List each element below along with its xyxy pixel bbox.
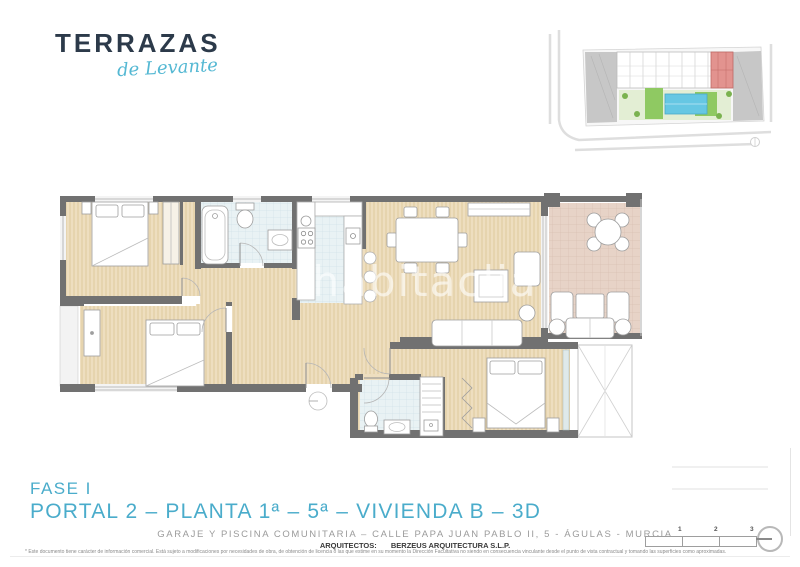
- landing-symbol: [309, 392, 327, 410]
- scale-label-1: 1: [678, 526, 682, 533]
- watermark-text: habitaclia: [312, 257, 537, 306]
- page-bottom-rule: [10, 556, 790, 557]
- page-edge-rule: [790, 448, 791, 536]
- scale-segment: [645, 536, 683, 547]
- scale-segment: [683, 536, 720, 547]
- divider-line: [672, 466, 768, 468]
- scale-label-3: 3: [750, 526, 754, 533]
- floor-plan: habitaclia: [55, 185, 655, 460]
- compass-needle: [756, 538, 772, 540]
- phase-title: FASE I: [30, 479, 92, 499]
- logo: TERRAZAS de Levante: [55, 28, 275, 77]
- bedroom1-furniture: [82, 202, 179, 266]
- scale-segment: [720, 536, 757, 547]
- disclaimer-text: * Este documento tiene carácter de infor…: [25, 549, 740, 555]
- address-line: GARAJE Y PISCINA COMUNITARIA – CALLE PAP…: [95, 529, 735, 540]
- site-parcel: [583, 47, 764, 147]
- compass-icon: [757, 526, 783, 552]
- brochure-page: TERRAZAS de Levante: [0, 0, 800, 567]
- site-plan-thumbnail: [545, 22, 777, 162]
- scale-bar: 1 2 3: [645, 536, 757, 546]
- unit-title: PORTAL 2 – PLANTA 1ª – 5ª – VIVIENDA B –…: [30, 500, 541, 524]
- scale-label-2: 2: [714, 526, 718, 533]
- divider-line: [672, 488, 768, 490]
- uncovered-terrace: [578, 345, 632, 437]
